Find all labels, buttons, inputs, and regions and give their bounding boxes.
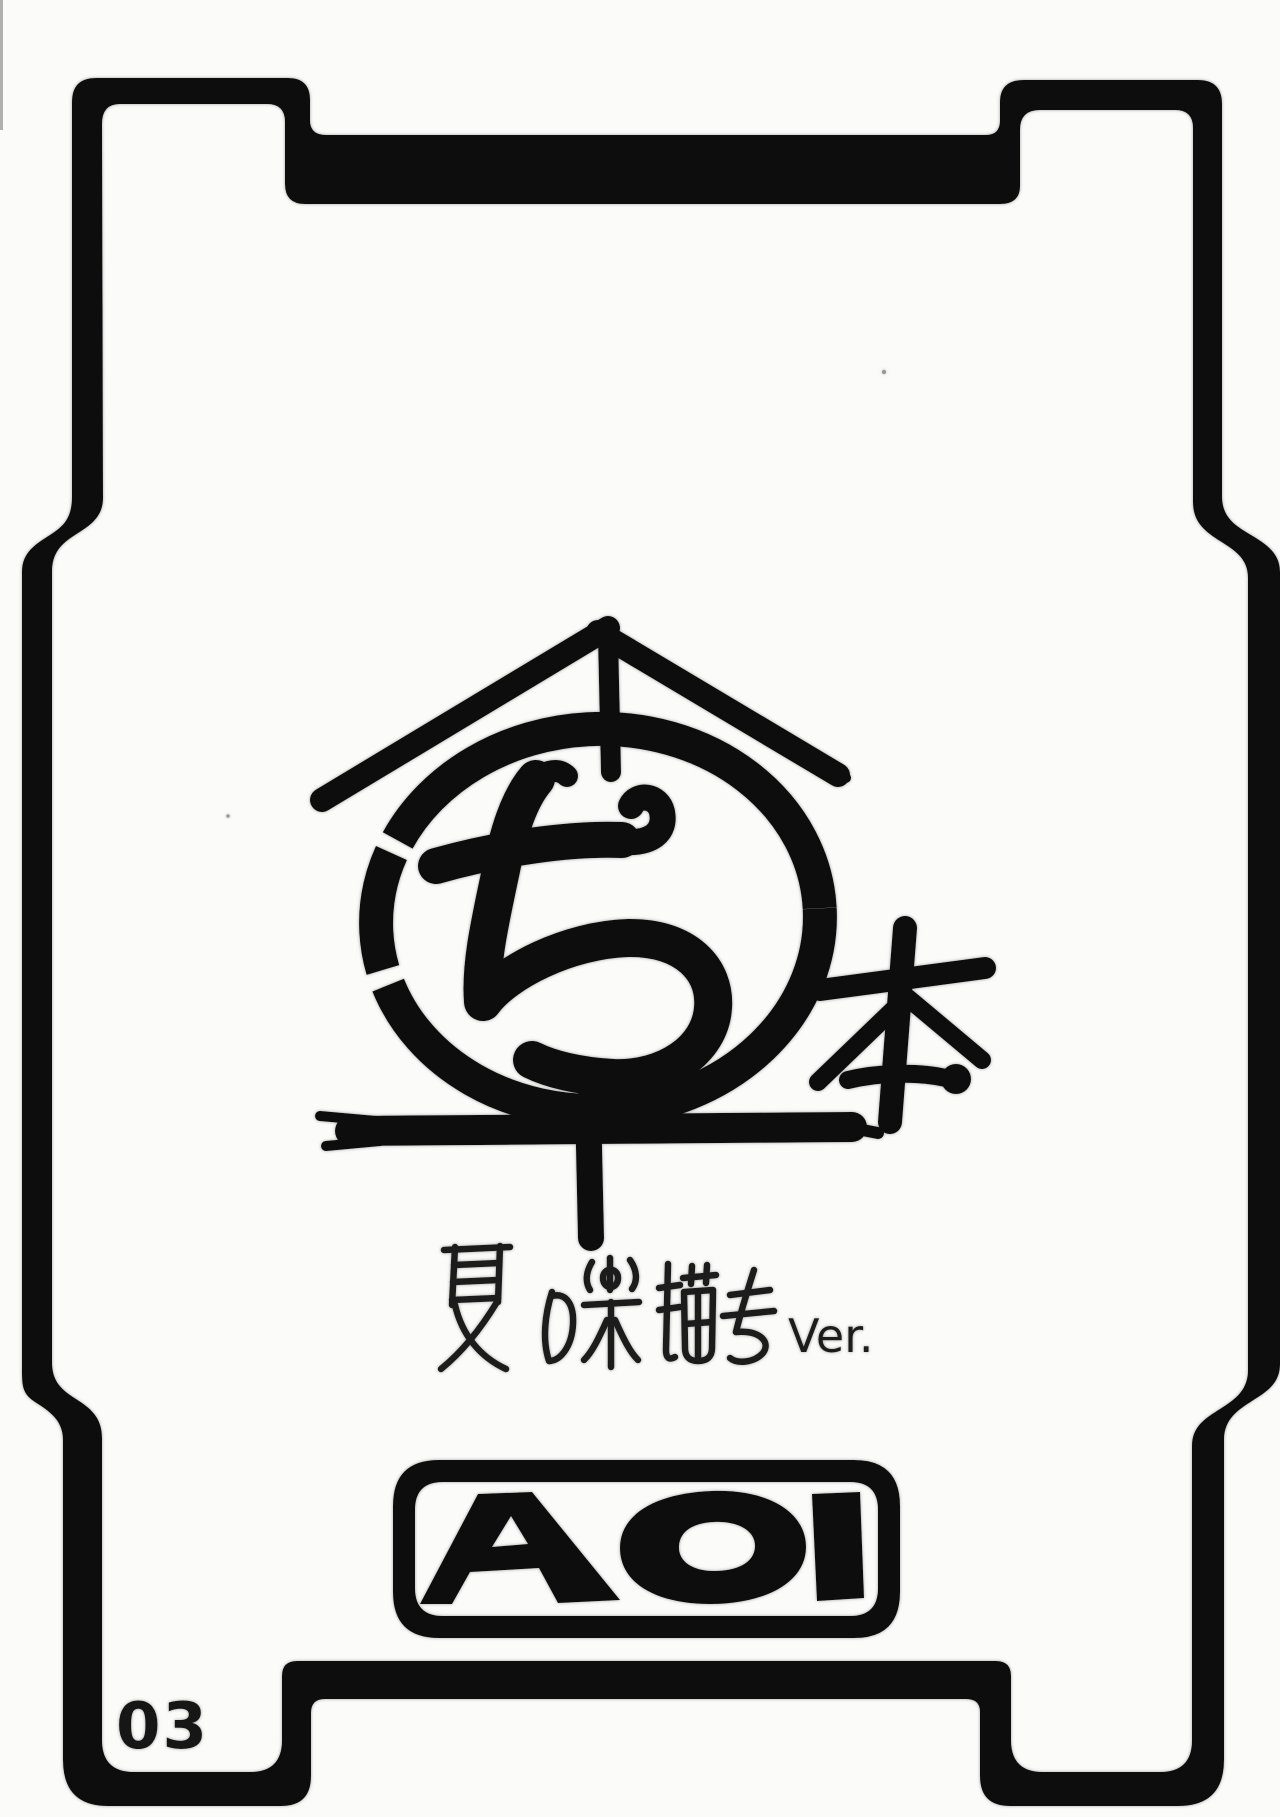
- logo-subtitle-kana: [441, 1246, 774, 1369]
- scanned-page: Ver. 03: [0, 0, 1280, 1817]
- logo-underline: [320, 1102, 878, 1238]
- page-artwork: Ver. 03: [0, 0, 1280, 1817]
- logo-hon-character: [818, 928, 985, 1122]
- glyph-raku: [584, 1258, 639, 1367]
- logo-chi-character: [436, 771, 713, 1078]
- logo-lower-stem: [588, 1102, 591, 1238]
- glyph-ki: [723, 1270, 774, 1362]
- scan-edge-artifact: [0, 0, 3, 130]
- aoi-badge-letters: [420, 1491, 864, 1604]
- glyph-kaki: [659, 1264, 716, 1361]
- subtitle-ver-text: Ver.: [788, 1309, 874, 1363]
- glyph-natsu: [441, 1246, 510, 1369]
- logo-arrow-stem: [608, 636, 611, 772]
- glyph-no: [545, 1292, 573, 1361]
- page-number: 03: [116, 1690, 209, 1764]
